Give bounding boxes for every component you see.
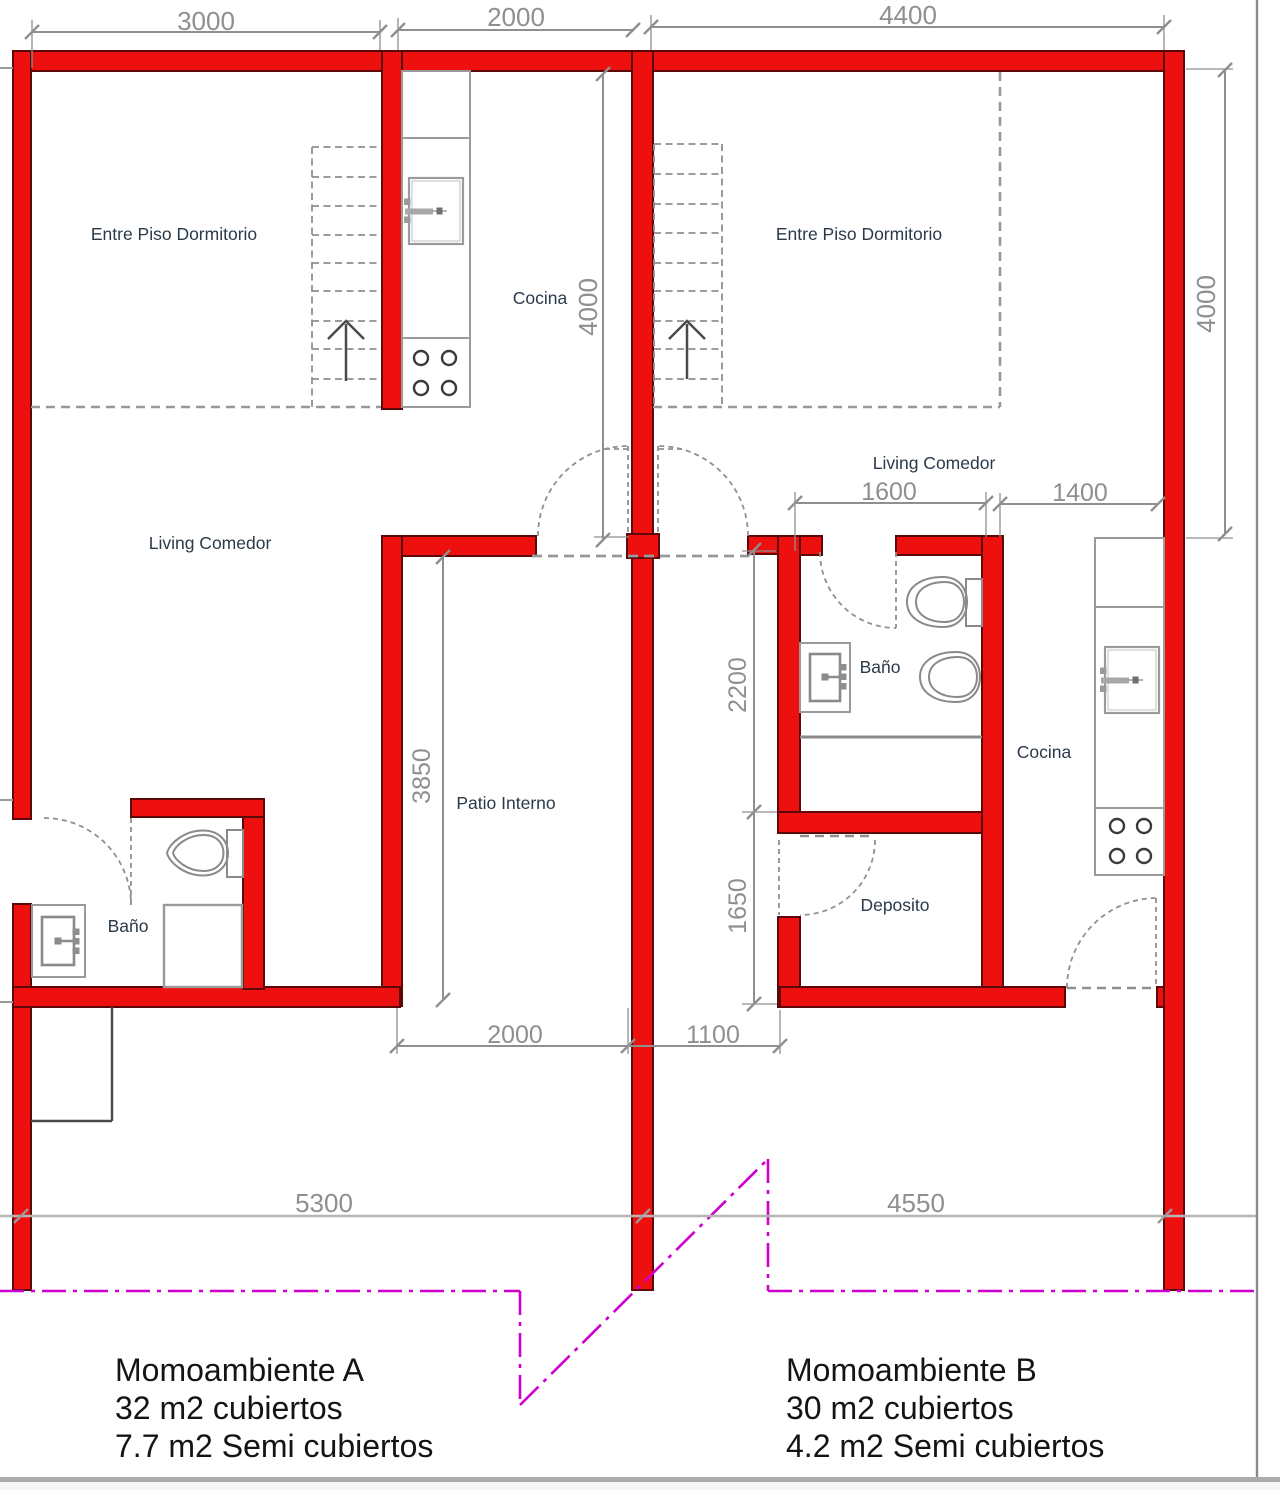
svg-text:Baño: Baño	[108, 916, 149, 936]
svg-text:4.2 m2 Semi cubiertos: 4.2 m2 Semi cubiertos	[786, 1428, 1104, 1464]
svg-text:5300: 5300	[295, 1188, 353, 1218]
svg-text:3850: 3850	[408, 748, 436, 804]
svg-text:Patio Interno: Patio Interno	[456, 793, 555, 813]
svg-text:2000: 2000	[487, 2, 545, 32]
svg-text:Entre Piso Dormitorio: Entre Piso Dormitorio	[91, 224, 257, 244]
svg-text:Cocina: Cocina	[513, 288, 568, 308]
svg-text:Cocina: Cocina	[1017, 742, 1072, 762]
svg-text:Living Comedor: Living Comedor	[149, 533, 272, 553]
svg-text:4000: 4000	[573, 278, 603, 336]
svg-text:4000: 4000	[1191, 275, 1221, 333]
svg-text:Living Comedor: Living Comedor	[873, 453, 996, 473]
svg-text:7.7 m2 Semi cubiertos: 7.7 m2 Semi cubiertos	[115, 1428, 433, 1464]
svg-text:3000: 3000	[177, 6, 235, 36]
svg-text:30 m2 cubiertos: 30 m2 cubiertos	[786, 1390, 1014, 1426]
svg-text:1600: 1600	[861, 478, 917, 506]
svg-text:4400: 4400	[879, 0, 937, 30]
svg-text:Deposito: Deposito	[860, 895, 929, 915]
svg-text:32 m2 cubiertos: 32 m2 cubiertos	[115, 1390, 343, 1426]
svg-text:Entre Piso Dormitorio: Entre Piso Dormitorio	[776, 224, 942, 244]
svg-text:4550: 4550	[887, 1188, 945, 1218]
svg-text:2200: 2200	[724, 657, 752, 713]
svg-text:Baño: Baño	[860, 657, 901, 677]
svg-text:1100: 1100	[686, 1021, 740, 1049]
svg-text:1400: 1400	[1052, 479, 1108, 507]
svg-text:1650: 1650	[724, 878, 752, 934]
svg-text:Momoambiente A: Momoambiente A	[115, 1352, 365, 1388]
svg-text:Momoambiente B: Momoambiente B	[786, 1352, 1037, 1388]
svg-text:2000: 2000	[487, 1021, 543, 1049]
